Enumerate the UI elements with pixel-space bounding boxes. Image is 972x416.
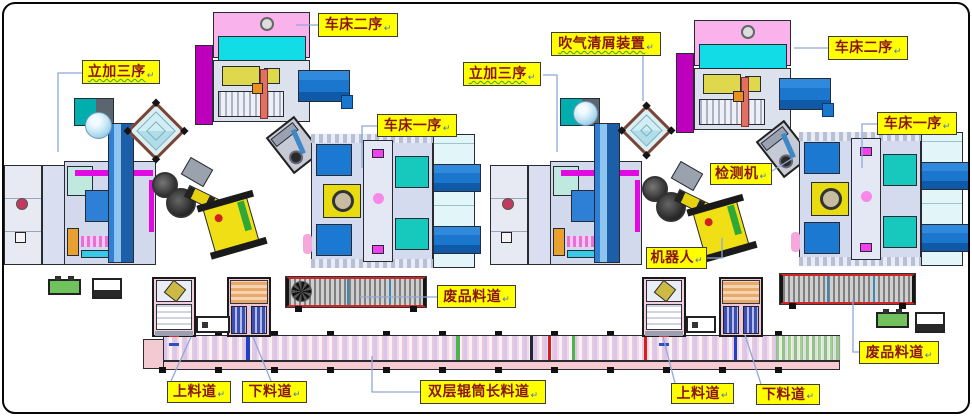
label-lathe-op2-left: 车床二序↵ — [318, 13, 398, 37]
return-mark-icon: ↵ — [528, 73, 536, 83]
return-mark-icon: ↵ — [293, 390, 301, 400]
return-mark-icon: ↵ — [147, 71, 155, 81]
label-scrap-left: 废品料道↵ — [437, 285, 516, 308]
label-text: 立加三序 — [469, 67, 527, 81]
label-load-right: 上料道↵ — [671, 383, 734, 404]
label-robot: 机器人↵ — [646, 247, 707, 269]
return-mark-icon: ↵ — [384, 24, 392, 34]
label-lathe-op2-right: 车床二序↵ — [828, 36, 908, 60]
return-mark-icon: ↵ — [925, 351, 933, 361]
label-text: 上料道 — [173, 385, 217, 399]
return-mark-icon: ↵ — [721, 391, 729, 401]
label-text: 下料道 — [762, 388, 806, 402]
return-mark-icon: ↵ — [759, 172, 767, 182]
label-text: 双层辊筒长料道 — [428, 385, 530, 399]
label-long-conveyor: 双层辊筒长料道↵ — [420, 380, 546, 404]
return-mark-icon: ↵ — [943, 122, 951, 132]
label-text: 上料道 — [676, 387, 720, 401]
return-mark-icon: ↵ — [695, 256, 703, 266]
return-mark-icon: ↵ — [806, 392, 814, 402]
return-mark-icon: ↵ — [530, 391, 538, 401]
label-unload-left: 下料道↵ — [242, 381, 307, 403]
return-mark-icon: ↵ — [217, 390, 225, 400]
label-text: 车床一序 — [384, 119, 442, 133]
label-text: 车床二序 — [835, 41, 893, 55]
label-text: 车床二序 — [325, 18, 383, 32]
layout-diagram: 车床二序↵ 立加三序↵ 吹气清屑装置↵ 立加三序↵ 车床二序↵ 车床一序↵ 车床… — [0, 0, 972, 416]
return-mark-icon: ↵ — [502, 295, 510, 305]
label-text: 吹气清屑装置 — [558, 37, 645, 51]
label-vmc-op3-left: 立加三序↵ — [82, 60, 160, 84]
label-text: 机器人 — [650, 251, 694, 265]
label-vmc-op3-right: 立加三序↵ — [463, 62, 541, 86]
label-scrap-right: 废品料道↵ — [859, 341, 939, 364]
label-text: 立加三序 — [88, 65, 146, 79]
label-unload-right: 下料道↵ — [756, 384, 820, 405]
label-text: 废品料道 — [866, 346, 924, 360]
return-mark-icon: ↵ — [443, 124, 451, 134]
label-text: 车床一序 — [884, 117, 942, 131]
return-mark-icon: ↵ — [646, 43, 654, 53]
label-blow-clean: 吹气清屑装置↵ — [551, 32, 661, 56]
label-text: 废品料道 — [443, 290, 501, 304]
label-lathe-op1-right: 车床一序↵ — [877, 112, 957, 135]
label-text: 下料道 — [248, 385, 292, 399]
label-load-left: 上料道↵ — [167, 381, 231, 403]
return-mark-icon: ↵ — [894, 47, 902, 57]
label-text: 检测机 — [715, 167, 759, 181]
label-lathe-op1-left: 车床一序↵ — [377, 114, 457, 137]
label-inspection: 检测机↵ — [710, 163, 772, 185]
